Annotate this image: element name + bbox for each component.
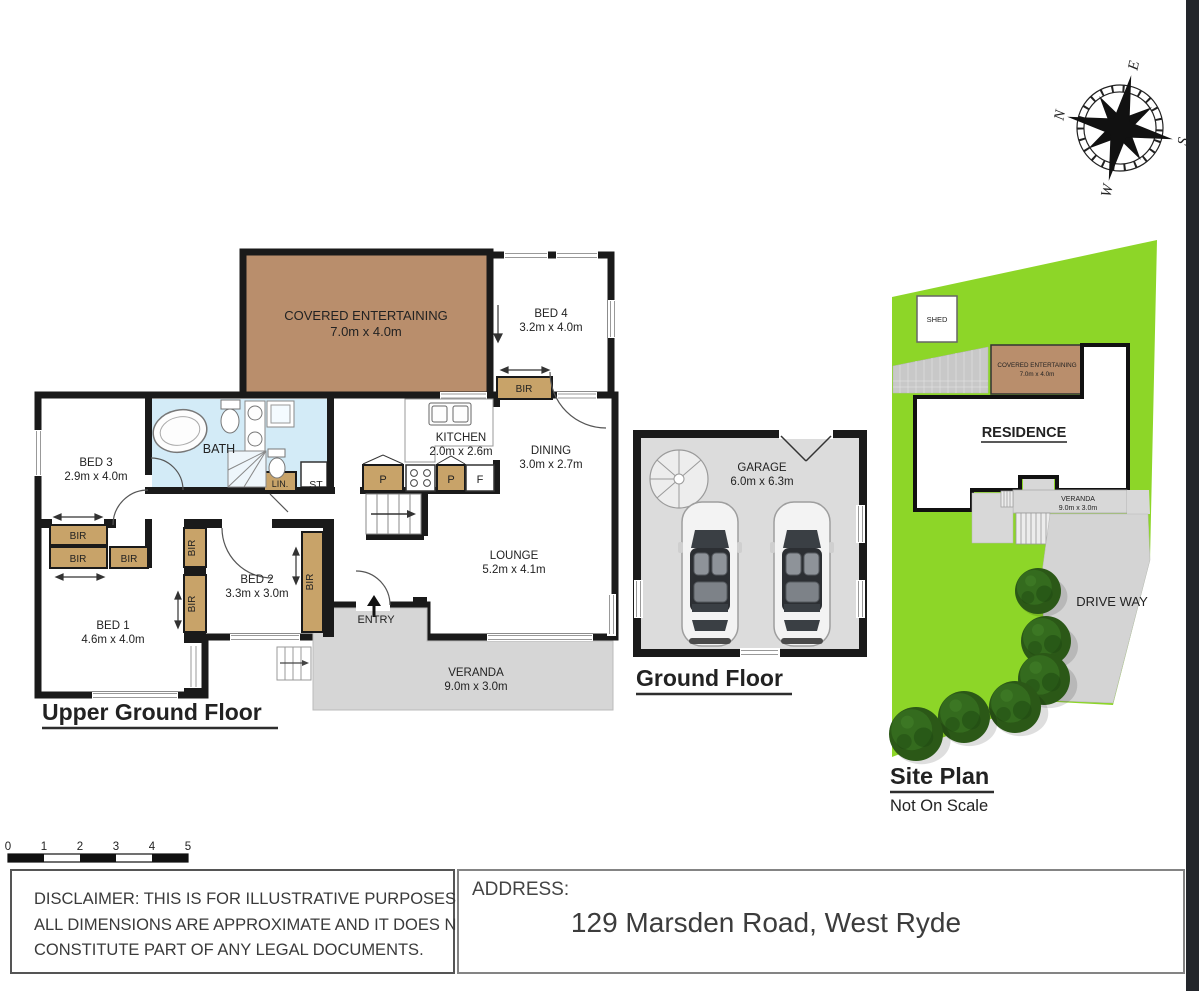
spiral-stair bbox=[650, 450, 708, 508]
bed3-label: BED 3 bbox=[79, 457, 112, 469]
bed3-dims: 2.9m x 4.0m bbox=[64, 471, 127, 483]
site-plan-title: Site Plan bbox=[890, 763, 989, 789]
storage-label: ST bbox=[309, 479, 323, 491]
bir-label: BIR bbox=[187, 540, 198, 557]
compass-cardinal-star bbox=[1056, 64, 1184, 192]
site-shed-label: SHED bbox=[927, 315, 948, 324]
disclaimer-line: CONSTITUTE PART OF ANY LEGAL DOCUMENTS. bbox=[34, 938, 453, 964]
porch-steps bbox=[277, 647, 311, 680]
site-residence-label: RESIDENCE bbox=[982, 425, 1067, 441]
disclaimer-box: DISCLAIMER: THIS IS FOR ILLUSTRATIVE PUR… bbox=[10, 869, 455, 974]
bir-label: BIR bbox=[187, 596, 198, 613]
bed2-dims: 3.3m x 3.0m bbox=[225, 588, 288, 600]
bed4-dims: 3.2m x 4.0m bbox=[519, 322, 582, 334]
bir-label: BIR bbox=[70, 531, 87, 542]
bir-label: BIR bbox=[516, 384, 533, 395]
ground-floor-title: Ground Floor bbox=[636, 665, 783, 691]
floorplan-drawing: SHED COVERED ENTERTAINING 7.0m x 4.0m RE… bbox=[0, 0, 1199, 991]
bed4-label: BED 4 bbox=[534, 308, 568, 320]
floorplan-page: SHED COVERED ENTERTAINING 7.0m x 4.0m RE… bbox=[0, 0, 1199, 991]
address-box: ADDRESS: 129 Marsden Road, West Ryde bbox=[457, 869, 1185, 974]
scale-tick: 4 bbox=[149, 841, 156, 853]
bir-label: BIR bbox=[121, 554, 138, 565]
compass-w-label: W bbox=[1099, 182, 1118, 199]
bed2-label: BED 2 bbox=[240, 574, 273, 586]
window-edge-strip bbox=[1186, 0, 1199, 991]
compass-n-label: N bbox=[1051, 108, 1069, 123]
scale-bar: 0 1 2 3 4 5 bbox=[5, 841, 191, 862]
covered-entertaining-dims: 7.0m x 4.0m bbox=[330, 324, 402, 339]
lounge-label: LOUNGE bbox=[490, 550, 539, 562]
site-covered-dims: 7.0m x 4.0m bbox=[1020, 371, 1055, 378]
scale-tick: 3 bbox=[113, 841, 119, 853]
site-veranda-dims: 9.0m x 3.0m bbox=[1059, 505, 1098, 512]
upper-ground-floor-title: Upper Ground Floor bbox=[42, 699, 262, 725]
scale-tick: 5 bbox=[185, 841, 191, 853]
dining-label: DINING bbox=[531, 445, 571, 457]
pantry-label: P bbox=[379, 474, 386, 486]
lounge-dims: 5.2m x 4.1m bbox=[482, 564, 545, 576]
dining-dims: 3.0m x 2.7m bbox=[519, 459, 582, 471]
disclaimer-line: DISCLAIMER: THIS IS FOR ILLUSTRATIVE PUR… bbox=[34, 887, 453, 913]
stairs-upper bbox=[366, 494, 421, 534]
site-veranda-label: VERANDA bbox=[1061, 496, 1095, 503]
kitchen-dims: 2.0m x 2.6m bbox=[429, 446, 492, 458]
fridge-label: F bbox=[477, 474, 484, 486]
bed1-dims: 4.6m x 4.0m bbox=[81, 634, 144, 646]
covered-entertaining-label: COVERED ENTERTAINING bbox=[284, 308, 447, 323]
bir-label: BIR bbox=[70, 554, 87, 565]
car bbox=[678, 502, 742, 646]
site-driveway-label: DRIVE WAY bbox=[1076, 594, 1148, 609]
site-covered-label: COVERED ENTERTAINING bbox=[997, 362, 1076, 369]
garage-door-opening bbox=[779, 428, 833, 439]
scale-tick: 0 bbox=[5, 841, 11, 853]
kitchen-label: KITCHEN bbox=[436, 432, 486, 444]
compass-e-label: E bbox=[1125, 59, 1143, 72]
bath-label: BATH bbox=[203, 442, 235, 456]
address-value: 129 Marsden Road, West Ryde bbox=[459, 907, 1183, 939]
address-label: ADDRESS: bbox=[472, 879, 569, 901]
pantry-label: P bbox=[447, 474, 454, 486]
site-covered-entertaining bbox=[991, 345, 1083, 394]
site-plan: SHED COVERED ENTERTAINING 7.0m x 4.0m RE… bbox=[889, 240, 1157, 815]
bir-label: BIR bbox=[305, 574, 316, 591]
car bbox=[770, 502, 834, 646]
linen-label: LIN. bbox=[272, 479, 289, 489]
scale-tick: 1 bbox=[41, 841, 47, 853]
compass-rose: N E S W bbox=[1038, 47, 1199, 212]
veranda-dims: 9.0m x 3.0m bbox=[444, 681, 507, 693]
site-plan-subtitle: Not On Scale bbox=[890, 797, 988, 815]
entry-label: ENTRY bbox=[357, 614, 395, 626]
scale-tick: 2 bbox=[77, 841, 83, 853]
bed1-label: BED 1 bbox=[96, 620, 129, 632]
garage-label: GARAGE bbox=[737, 462, 787, 474]
veranda-label: VERANDA bbox=[448, 667, 504, 679]
upper-ground-floor-plan: COVERED ENTERTAINING 7.0m x 4.0m BED 4 3… bbox=[34, 251, 617, 728]
disclaimer-line: ALL DIMENSIONS ARE APPROXIMATE AND IT DO… bbox=[34, 913, 453, 939]
garage-dims: 6.0m x 6.3m bbox=[730, 476, 793, 488]
ground-floor-plan: GARAGE 6.0m x 6.3m Ground Floor bbox=[634, 428, 865, 694]
